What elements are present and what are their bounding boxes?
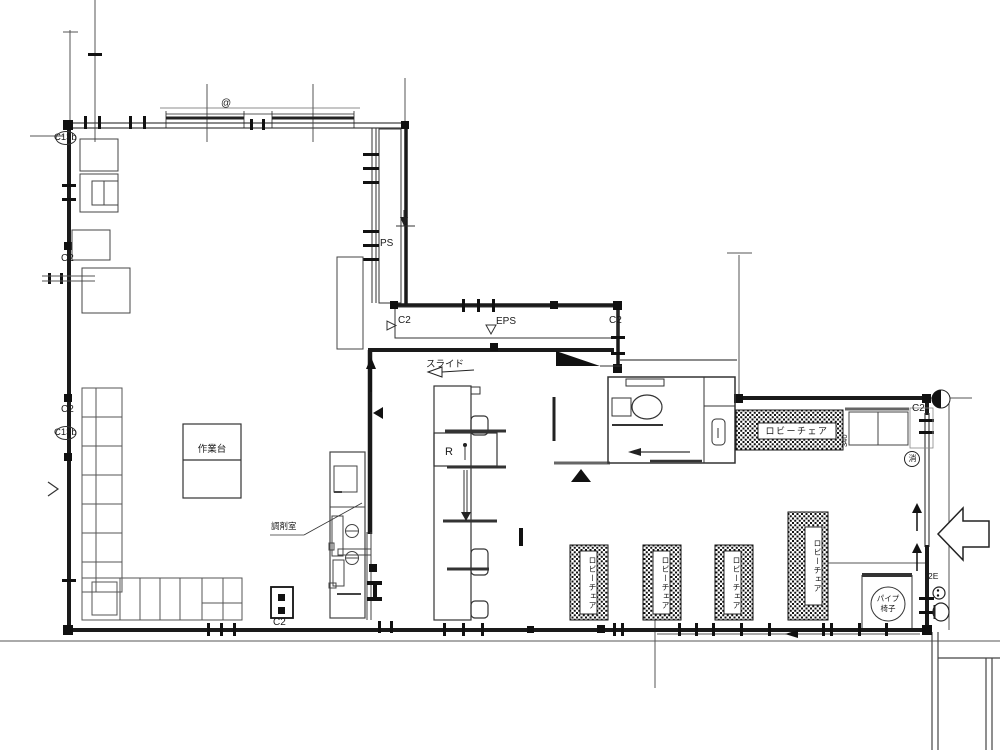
grid-label-c2-eps-left: C2 (398, 316, 411, 326)
stair-2e-label: 2E (928, 572, 938, 581)
extinguisher-label: 消 (906, 455, 919, 463)
lobby-chair-label-2: ロビーチェア (654, 554, 669, 612)
grid-label-c2-right: C2 (912, 404, 925, 414)
bottom-column-fixture (271, 587, 293, 618)
right-edge-fixtures (933, 587, 949, 621)
grid-label-c2-eps-right: C2 (609, 316, 622, 326)
slide-door-label: スライド (426, 360, 464, 370)
grid-label-c2-bottom: C2 (273, 618, 286, 628)
lobby-chair-label-1: ロビーチェア (581, 554, 596, 612)
exterior-guide-lines (0, 0, 1000, 688)
eps-shaft-label: EPS (496, 317, 516, 327)
dim-340-label: 340 (841, 434, 849, 447)
wall-fixture-halfcircle (932, 390, 950, 408)
lobby-chairs-bottom (570, 512, 828, 620)
dispensing-desk (329, 452, 371, 620)
ps-shaft-label: PS (380, 239, 393, 249)
grid-label-c2-left-upper: C2 (61, 254, 74, 264)
floor-plan: @ C13b C2 PS C2 EPS C2 スライド C2 C13b 作業台 … (0, 0, 1000, 750)
reception-r-label: R (445, 447, 453, 458)
grid-label-c13b-left: C13b (54, 428, 77, 438)
window-band (160, 108, 360, 128)
bottom-right-exterior-wall (932, 632, 1000, 750)
pipe-chair-label-line1: パイプ (870, 595, 906, 603)
lobby-chair-label-4: ロビーチェア (806, 530, 821, 602)
work-table-outline (183, 424, 241, 498)
steel-column-ibeam (367, 528, 523, 601)
toilet-room (608, 377, 735, 463)
lobby-chair-top-label: ロビーチェア (759, 427, 835, 436)
dispensing-room-label: 調剤室 (271, 522, 297, 531)
at-mark-label: @ (221, 99, 231, 109)
grid-label-c2-left-mid: C2 (61, 405, 74, 415)
top-left-cabinets (72, 139, 363, 349)
grid-label-c13b-top: C13b (54, 133, 77, 143)
entrance-arrow (938, 508, 989, 560)
floor-plan-linework (0, 0, 1000, 750)
work-table-label: 作業台 (185, 445, 239, 455)
reception-counter (434, 386, 506, 620)
left-shelving (82, 388, 242, 620)
lobby-chair-label-3: ロビーチェア (725, 554, 740, 612)
pipe-chair-label-line2: 椅子 (870, 605, 906, 613)
